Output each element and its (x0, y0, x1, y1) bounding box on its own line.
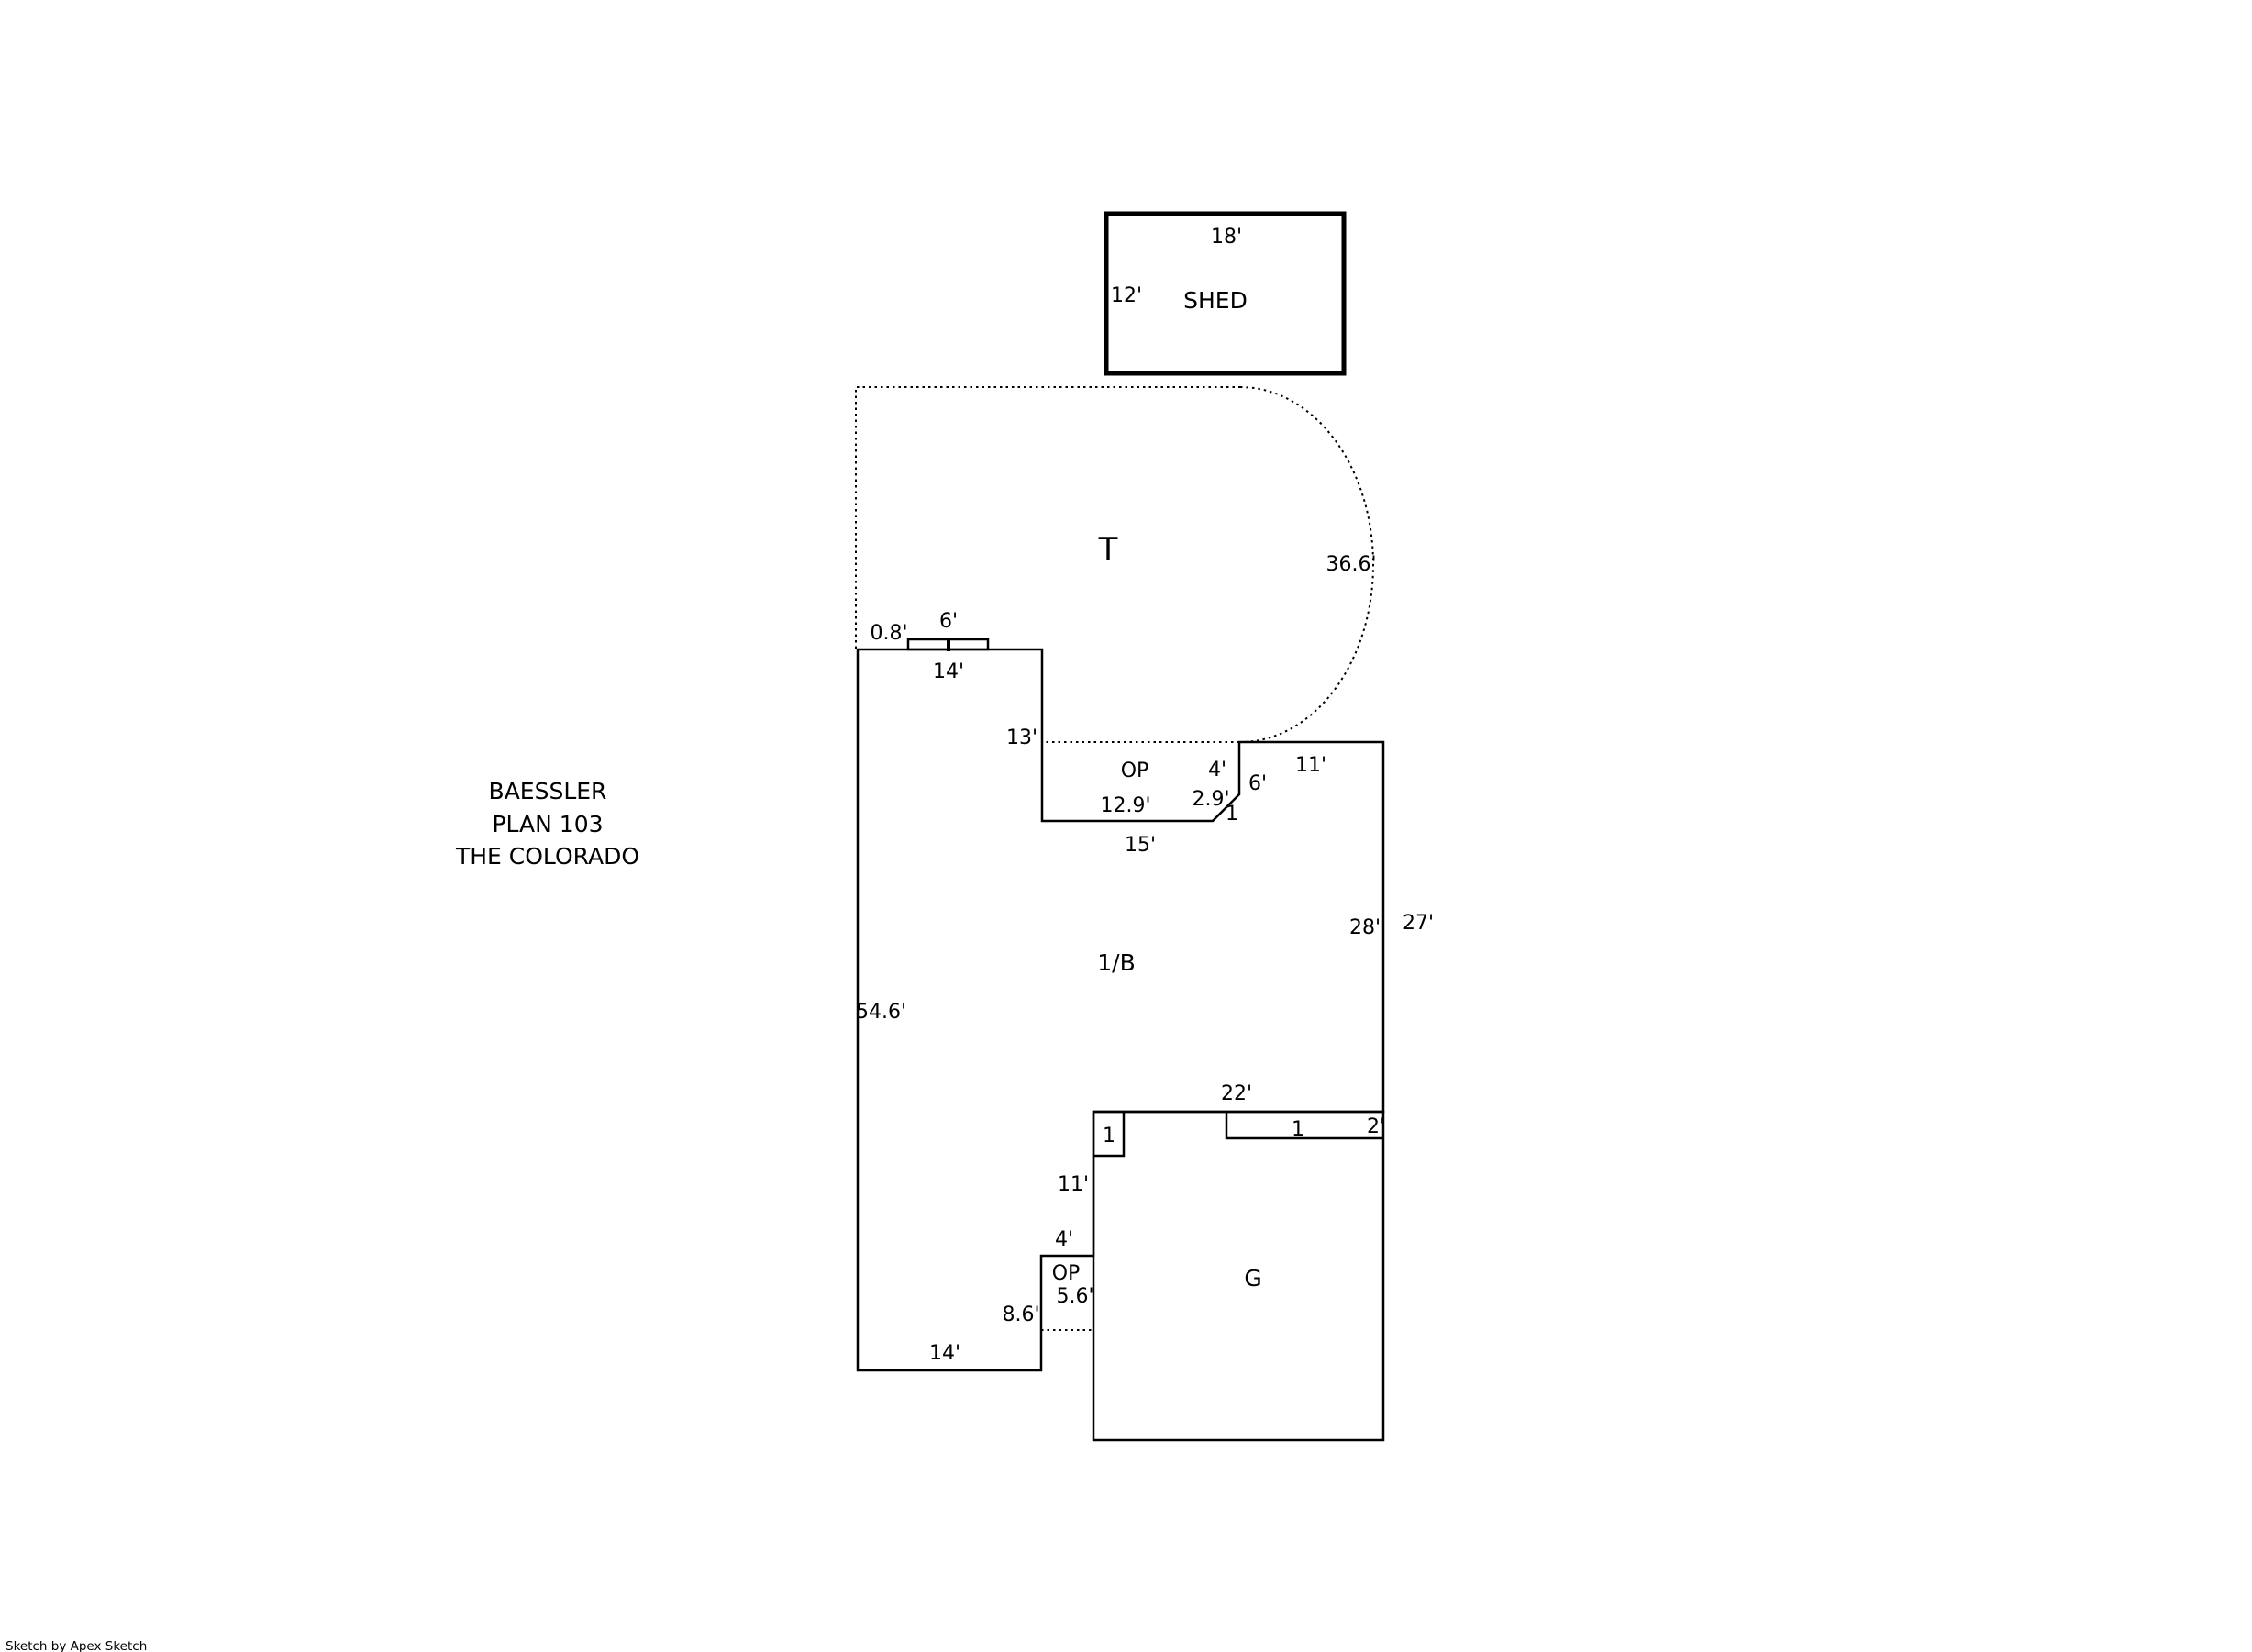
title-block-line-1: BAESSLER (489, 778, 607, 804)
dim-stoop-width: 6' (939, 610, 958, 633)
dim-garage-left-wall-upper: 11' (1058, 1173, 1089, 1196)
garage-outline (1093, 1112, 1383, 1440)
room-label-porch-upper: OP (1121, 759, 1149, 782)
dim-porch-upper-adjacent-wall: 6' (1248, 772, 1267, 795)
dim-garage-top-width: 22' (1221, 1082, 1252, 1105)
dim-house-right-upper-wall: 13' (1006, 726, 1037, 749)
dim-shed-width: 18' (1211, 226, 1242, 249)
dim-house-left-wall: 54.6' (856, 1001, 906, 1024)
dim-garage-top-strip-depth: 2' (1367, 1115, 1385, 1138)
dim-patio-arc: 36.6' (1326, 553, 1376, 576)
room-label-shed: SHED (1183, 287, 1248, 314)
dim-porch-upper-inner-width: 12.9' (1100, 794, 1150, 817)
dim-porch-lower-height: 5.6' (1056, 1285, 1093, 1308)
room-label-house: 1/B (1097, 949, 1135, 976)
title-block-line-3: THE COLORADO (455, 843, 639, 870)
dim-house-bottom-width: 14' (929, 1342, 960, 1365)
dim-garage-right-wall: 27' (1403, 912, 1434, 935)
dim-porch-upper-diagonal: 2.9' (1192, 788, 1229, 811)
sketch-credit: Sketch by Apex Sketch (6, 1639, 147, 1652)
dim-house-top-width: 14' (933, 660, 964, 683)
dim-porch-lower-top-width: 4' (1055, 1228, 1073, 1251)
dim-shed-depth: 12' (1111, 284, 1142, 307)
title-block-line-2: PLAN 103 (492, 811, 603, 837)
dim-house-east-wall: 28' (1349, 916, 1381, 939)
garage-top-strip (1226, 1112, 1383, 1138)
dim-porch-upper-diagonal-offset: 1 (1226, 803, 1238, 826)
floor-plan-sketch-page: 18' 12' SHED T 36.6' 6' 0.8' 14' 13' 11'… (0, 0, 2252, 1652)
patio-dotted-boundary (856, 387, 1240, 649)
dim-house-upper-right-top: 11' (1295, 754, 1326, 777)
floor-plan-canvas: 18' 12' SHED T 36.6' 6' 0.8' 14' 13' 11'… (0, 0, 2252, 1652)
dim-garage-top-strip-length: 1 (1292, 1118, 1304, 1141)
dim-garage-corner-jog: 1 (1103, 1125, 1115, 1148)
dim-house-lower-right-wall: 8.6' (1002, 1303, 1039, 1326)
room-label-garage: G (1244, 1265, 1261, 1292)
dim-porch-upper-right-edge: 4' (1208, 759, 1226, 782)
room-label-patio: T (1098, 531, 1118, 568)
room-label-porch-lower: OP (1052, 1262, 1081, 1285)
dim-porch-upper-overall-width: 15' (1125, 834, 1156, 857)
dim-stoop-depth: 0.8' (870, 622, 907, 645)
